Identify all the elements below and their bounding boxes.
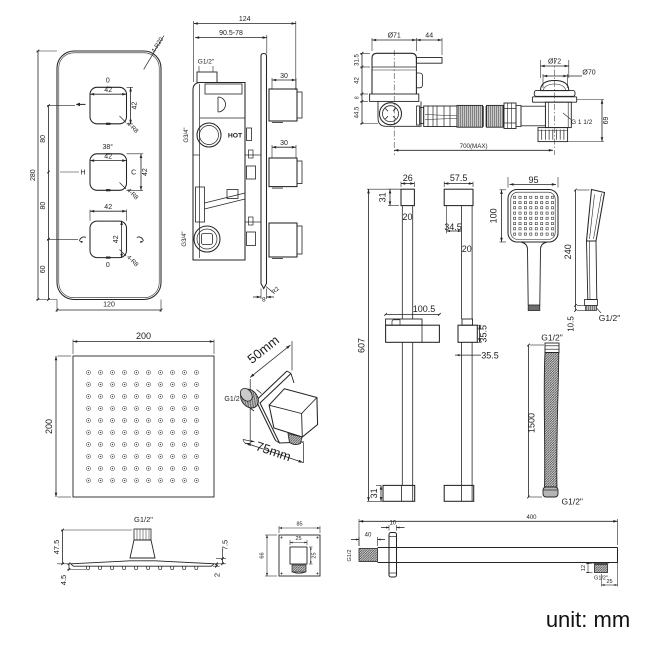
svg-text:280: 280: [30, 169, 37, 181]
svg-text:7.5: 7.5: [221, 540, 230, 550]
svg-text:44.5: 44.5: [355, 106, 361, 118]
svg-text:26: 26: [403, 173, 413, 183]
svg-text:4.5: 4.5: [59, 575, 68, 585]
svg-text:8: 8: [355, 96, 361, 99]
svg-text:unit: mm: unit: mm: [546, 607, 630, 632]
svg-text:200: 200: [44, 419, 54, 434]
svg-text:40: 40: [365, 533, 372, 539]
svg-text:120: 120: [103, 302, 115, 309]
svg-text:R2: R2: [271, 286, 281, 296]
svg-text:25: 25: [312, 552, 318, 558]
svg-text:H: H: [80, 170, 85, 177]
svg-text:700(MAX): 700(MAX): [460, 143, 488, 150]
svg-text:80: 80: [40, 135, 47, 143]
svg-text:0: 0: [106, 78, 110, 85]
svg-text:31: 31: [378, 192, 388, 202]
svg-text:G 1 1/2: G 1 1/2: [571, 119, 593, 126]
svg-text:100.5: 100.5: [413, 304, 436, 314]
svg-text:2: 2: [213, 573, 222, 577]
svg-text:10: 10: [389, 521, 396, 527]
svg-text:10.5: 10.5: [567, 316, 576, 332]
svg-text:90.5-78: 90.5-78: [219, 30, 243, 37]
svg-text:31.5: 31.5: [355, 54, 361, 66]
svg-text:100: 100: [489, 208, 499, 223]
svg-text:C: C: [131, 170, 136, 177]
svg-text:4-R8: 4-R8: [125, 187, 140, 202]
svg-text:35.5: 35.5: [481, 350, 499, 360]
svg-text:0: 0: [106, 262, 110, 269]
svg-text:400: 400: [526, 515, 537, 521]
svg-text:38°: 38°: [103, 143, 114, 151]
svg-text:HOT: HOT: [228, 133, 243, 140]
svg-text:25: 25: [606, 579, 612, 585]
svg-text:50mm: 50mm: [244, 332, 282, 366]
svg-text:G1/2": G1/2": [198, 59, 215, 66]
svg-text:124: 124: [239, 16, 251, 23]
svg-text:12: 12: [581, 565, 587, 571]
svg-text:44: 44: [425, 33, 433, 40]
svg-text:G1/2": G1/2": [599, 313, 620, 323]
svg-text:200: 200: [136, 331, 151, 341]
svg-text:1500: 1500: [527, 413, 537, 433]
svg-text:Ø71: Ø71: [388, 33, 401, 40]
svg-text:8: 8: [262, 297, 266, 304]
svg-text:4-R20: 4-R20: [150, 36, 165, 54]
svg-text:95: 95: [528, 175, 538, 185]
svg-text:60: 60: [40, 265, 47, 273]
svg-text:42: 42: [104, 204, 112, 211]
svg-text:35.5: 35.5: [479, 325, 489, 343]
svg-text:Ø70: Ø70: [582, 70, 595, 77]
svg-text:G1/2": G1/2": [134, 515, 153, 524]
svg-text:34.5: 34.5: [444, 222, 462, 232]
svg-text:Ø72: Ø72: [548, 59, 561, 66]
svg-text:4-R8: 4-R8: [125, 254, 140, 269]
svg-text:G1/2: G1/2: [347, 550, 353, 562]
svg-text:47.5: 47.5: [52, 540, 61, 555]
svg-text:G1/2": G1/2": [562, 497, 583, 507]
svg-text:42: 42: [142, 168, 149, 176]
svg-text:25: 25: [295, 536, 301, 542]
svg-text:80: 80: [40, 202, 47, 210]
svg-text:G1/2: G1/2: [224, 396, 239, 403]
svg-text:20: 20: [462, 244, 472, 254]
svg-text:69: 69: [603, 117, 610, 125]
svg-text:G1/2": G1/2": [541, 333, 562, 343]
svg-text:607: 607: [357, 338, 367, 353]
svg-text:G3/4": G3/4": [184, 127, 190, 142]
svg-text:42: 42: [104, 87, 112, 94]
svg-text:57.5: 57.5: [450, 173, 468, 183]
svg-text:42: 42: [355, 77, 361, 84]
svg-text:G3/4": G3/4": [182, 231, 188, 246]
svg-text:30: 30: [280, 73, 288, 80]
svg-text:4-R8: 4-R8: [125, 120, 140, 135]
svg-text:31: 31: [369, 488, 379, 498]
svg-text:240: 240: [563, 244, 573, 259]
svg-text:20: 20: [402, 212, 412, 222]
svg-text:66: 66: [260, 552, 266, 558]
svg-text:42: 42: [104, 154, 112, 161]
svg-text:85: 85: [296, 522, 302, 528]
svg-text:42: 42: [132, 102, 139, 110]
svg-text:42: 42: [113, 235, 120, 243]
svg-text:30: 30: [280, 140, 288, 147]
